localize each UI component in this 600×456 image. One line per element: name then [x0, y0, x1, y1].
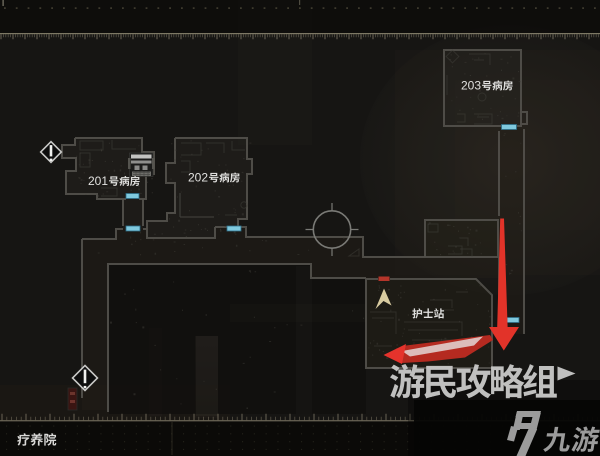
svg-text:203: 203 — [461, 79, 481, 93]
svg-text:202: 202 — [188, 171, 208, 185]
svg-text:201: 201 — [88, 174, 108, 188]
